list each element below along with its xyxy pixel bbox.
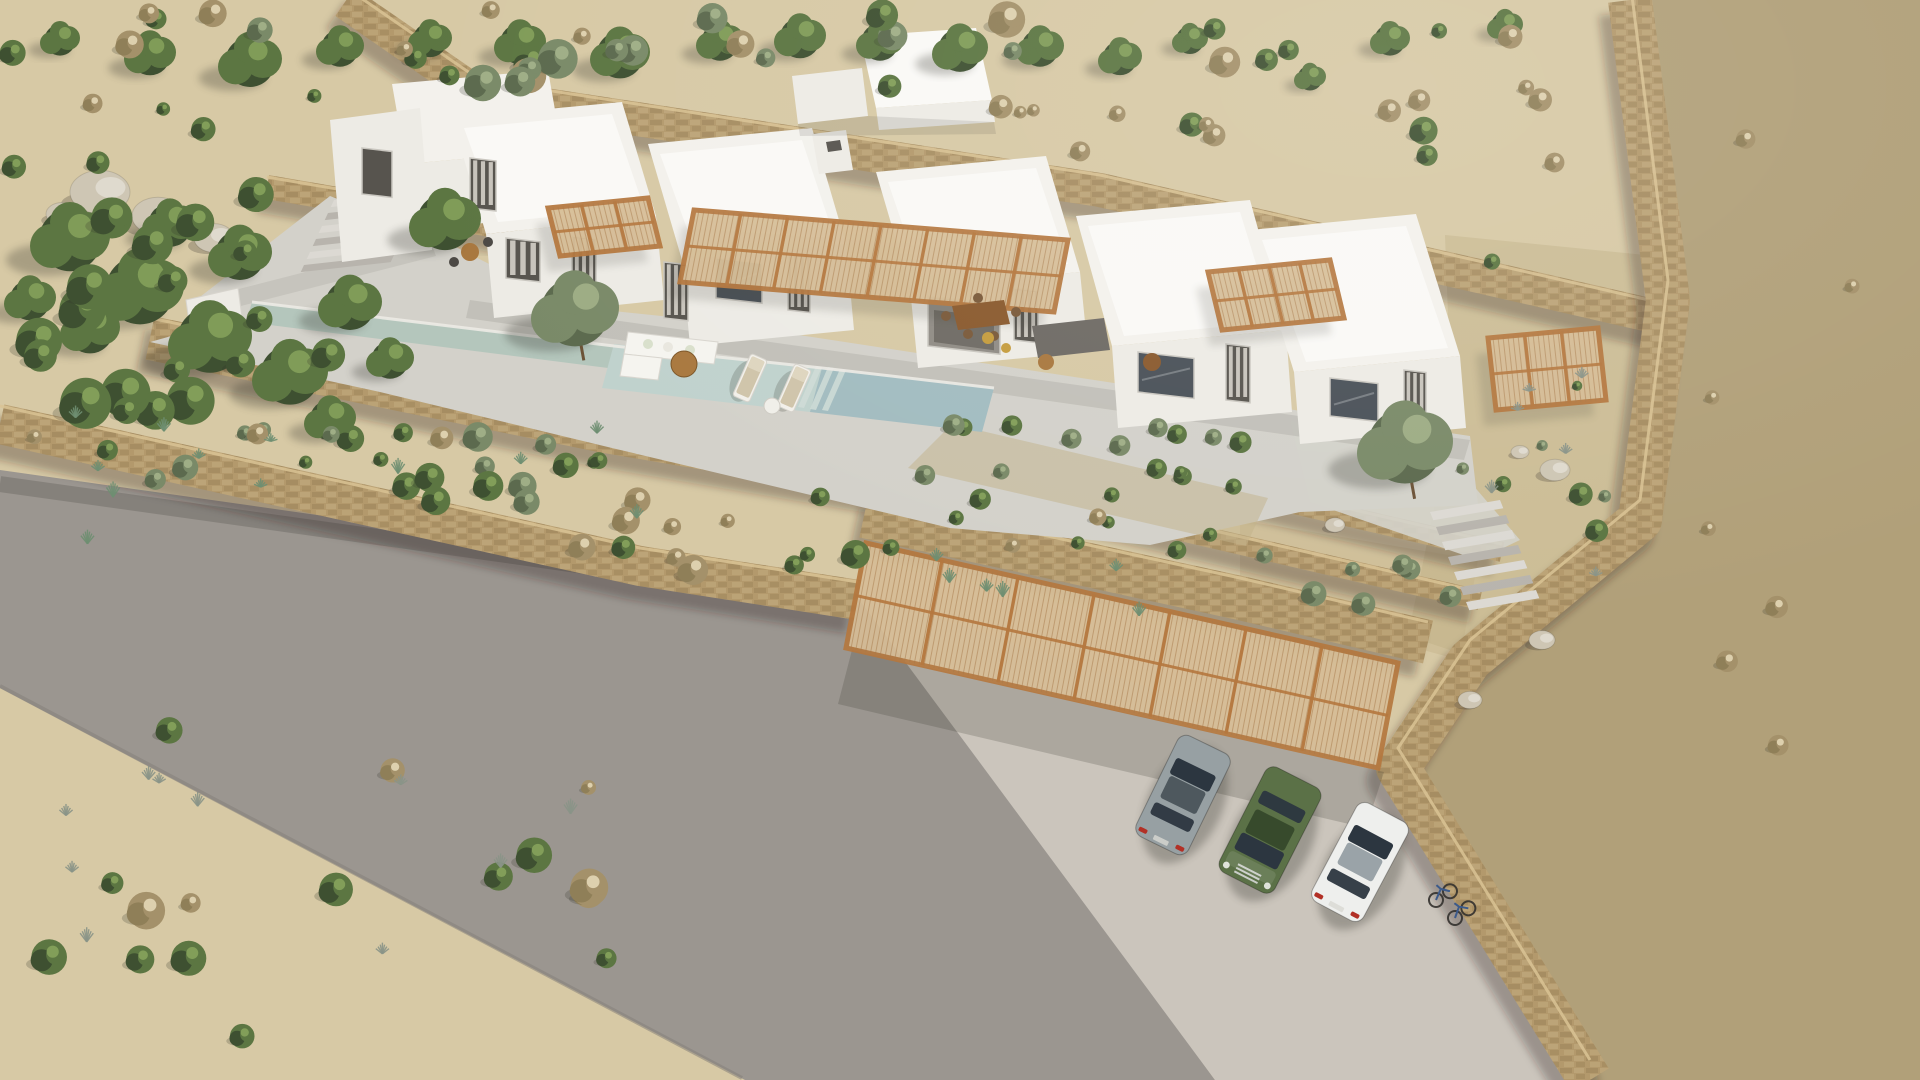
rendering-canvas: Aerial 3D architectural rendering: white… xyxy=(0,0,1920,1080)
architectural-rendering: Aerial 3D architectural rendering: white… xyxy=(0,0,1920,1080)
sunlight-overlay xyxy=(0,0,1920,1080)
